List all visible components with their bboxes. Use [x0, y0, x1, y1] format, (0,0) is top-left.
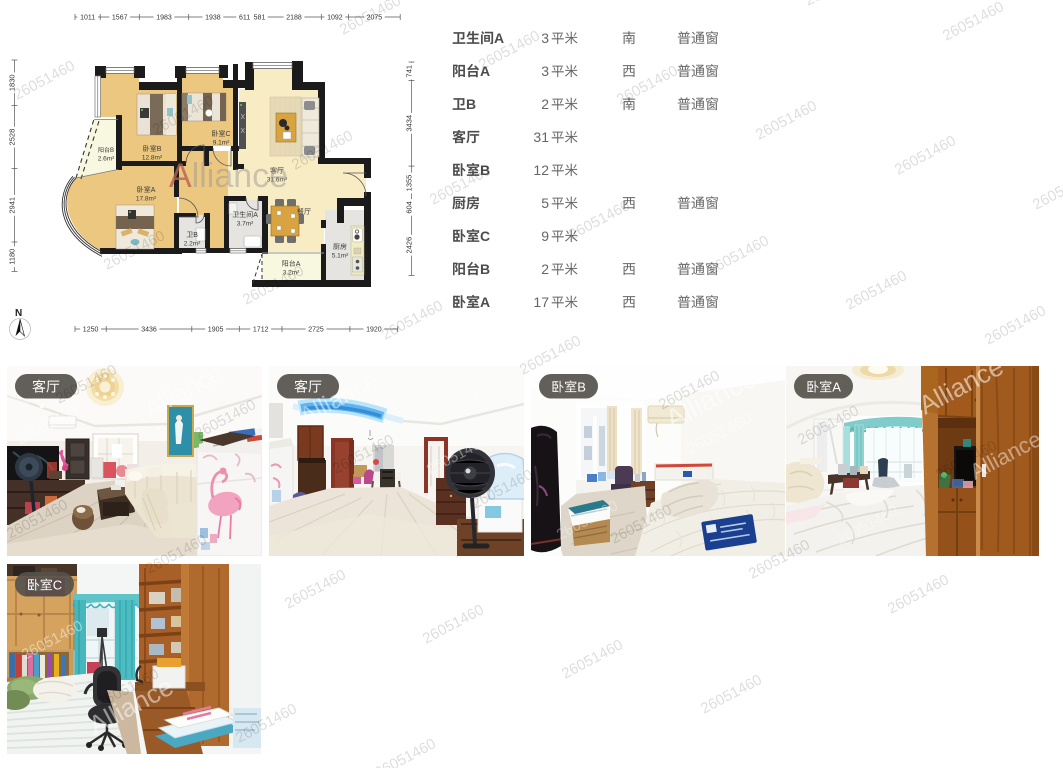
svg-text:3434: 3434 — [405, 115, 414, 132]
svg-text:A: A — [151, 187, 156, 194]
svg-text:581: 581 — [254, 15, 266, 22]
svg-text:1250: 1250 — [83, 327, 99, 334]
svg-text:1011: 1011 — [80, 15, 95, 22]
svg-text:B: B — [110, 148, 114, 154]
svg-text:B: B — [193, 232, 198, 239]
svg-text:611: 611 — [239, 15, 250, 22]
svg-text:1092: 1092 — [327, 15, 343, 22]
svg-text:B: B — [577, 380, 586, 395]
svg-text:2725: 2725 — [308, 327, 324, 334]
svg-text:2426: 2426 — [405, 237, 414, 254]
svg-text:1983: 1983 — [156, 15, 172, 22]
svg-text:1712: 1712 — [253, 327, 269, 334]
svg-text:9.1m²: 9.1m² — [213, 140, 230, 147]
svg-text:A: A — [480, 294, 490, 310]
svg-text:1567: 1567 — [112, 15, 128, 22]
svg-text:604: 604 — [405, 201, 414, 214]
svg-text:9: 9 — [541, 228, 549, 244]
svg-text:3: 3 — [541, 30, 549, 46]
svg-text:2.2m²: 2.2m² — [184, 241, 201, 248]
svg-text:3436: 3436 — [141, 327, 157, 334]
svg-text:3: 3 — [541, 63, 549, 79]
svg-text:A: A — [169, 157, 192, 195]
svg-text:1180: 1180 — [8, 249, 17, 265]
svg-text:31: 31 — [533, 129, 549, 145]
svg-text:2188: 2188 — [286, 15, 302, 22]
svg-text:17.8m²: 17.8m² — [136, 196, 157, 203]
svg-text:C: C — [53, 578, 62, 593]
svg-text:3.7m²: 3.7m² — [237, 221, 254, 228]
svg-text:N: N — [15, 308, 22, 319]
svg-text:2.6m²: 2.6m² — [98, 156, 115, 163]
svg-text:741: 741 — [405, 65, 414, 78]
svg-text:12: 12 — [533, 162, 549, 178]
svg-text:2: 2 — [541, 261, 549, 277]
svg-text:12.8m²: 12.8m² — [142, 155, 163, 162]
svg-text:B: B — [466, 96, 476, 112]
svg-text:A: A — [253, 212, 258, 219]
svg-text:B: B — [480, 261, 490, 277]
svg-text:1355: 1355 — [405, 175, 414, 192]
svg-text:B: B — [157, 146, 162, 153]
svg-text:A: A — [832, 380, 841, 395]
svg-text:5.1m²: 5.1m² — [332, 253, 349, 260]
svg-text:17: 17 — [533, 294, 549, 310]
svg-text:C: C — [226, 131, 231, 138]
svg-text:2528: 2528 — [8, 129, 17, 146]
svg-text:2: 2 — [541, 96, 549, 112]
svg-text:1905: 1905 — [208, 327, 224, 334]
svg-text:2941: 2941 — [8, 197, 17, 214]
svg-text:5: 5 — [541, 195, 549, 211]
svg-text:1938: 1938 — [205, 15, 221, 22]
svg-text:C: C — [480, 228, 490, 244]
